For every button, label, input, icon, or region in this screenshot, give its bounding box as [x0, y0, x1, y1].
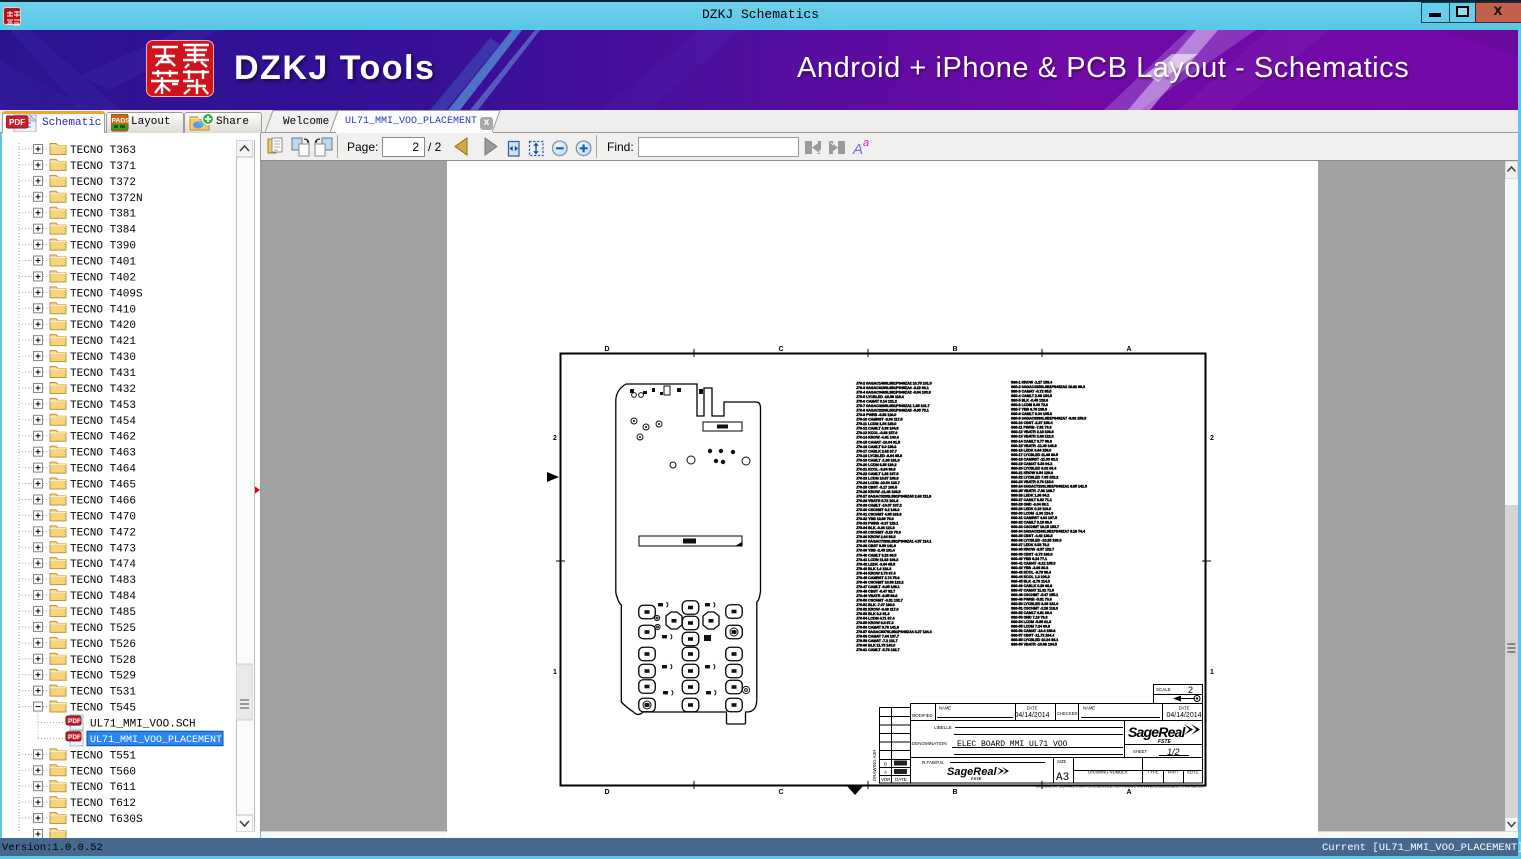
svg-text:NAME: NAME — [939, 706, 951, 711]
svg-text:S60-23 VBATR 0.76 115.0: S60-23 VBATR 0.76 115.0 — [1011, 480, 1053, 484]
svg-text:J70-22 CAMLT 1.92 107.9: J70-22 CAMLT 1.92 107.9 — [856, 472, 898, 476]
svg-text:S60-26 LEDK 1.36 94.2: S60-26 LEDK 1.36 94.2 — [1011, 494, 1049, 498]
svg-text:S60-9 0AGAC839SL9B1PS49ZA7 -9.: S60-9 0AGAC839SL9B1PS49ZA7 -9.92 159.3 — [1011, 417, 1086, 421]
svg-text:S60-52 CAMLT 4.81 69.4: S60-52 CAMLT 4.81 69.4 — [1011, 611, 1053, 615]
svg-text:J70-14 KROW -4.81 143.4: J70-14 KROW -4.81 143.4 — [856, 436, 900, 440]
svg-text:J70-38 CBST 9.59 141.9: J70-38 CBST 9.59 141.9 — [856, 544, 896, 548]
svg-text:S60-55 LCDM 7.24 68.8: S60-55 LCDM 7.24 68.8 — [1011, 625, 1050, 629]
svg-text:R.FAB/P.N.: R.FAB/P.N. — [922, 760, 944, 765]
svg-text:J70-20 LCDM 6.35 120.2: J70-20 LCDM 6.35 120.2 — [856, 463, 897, 467]
svg-text:TECNO T485: TECNO T485 — [70, 607, 136, 619]
svg-text:FSTE: FSTE — [971, 776, 982, 781]
svg-text:B: B — [952, 346, 957, 353]
svg-text:S60-5 BLK -0.49 128.6: S60-5 BLK -0.49 128.6 — [1011, 399, 1048, 403]
svg-text:J70-57 0AGAC907SL9B1PS49ZA4 3.: J70-57 0AGAC907SL9B1PS49ZA4 3.27 124.4 — [856, 630, 933, 634]
svg-text:S60-12 VBATR 2.18 108.9: S60-12 VBATR 2.18 108.9 — [1011, 430, 1054, 434]
svg-text:A: A — [852, 141, 863, 158]
svg-text:S60-46 CABLK 0.29 66.8: S60-46 CABLK 0.29 66.8 — [1011, 584, 1052, 588]
svg-text:J70-49 VBATR -9.55 96.0: J70-49 VBATR -9.55 96.0 — [856, 594, 897, 598]
svg-text:TECNO T474: TECNO T474 — [70, 559, 136, 571]
svg-text:J70-15 CAMAT -10.04 91.5: J70-15 CAMAT -10.04 91.5 — [856, 440, 900, 444]
svg-text:S60-18 CAMRST -11.33 82.3: S60-18 CAMRST -11.33 82.3 — [1011, 457, 1058, 461]
svg-text:J70-26 KROW -11.46 108.5: J70-26 KROW -11.46 108.5 — [856, 490, 901, 494]
svg-text:DOCUMENT SGM ALL RIGHTS RESERV: DOCUMENT SGM ALL RIGHTS RESERVED. REPROD… — [1036, 785, 1204, 789]
svg-text:TECNO T531: TECNO T531 — [70, 687, 136, 699]
svg-text:S60-50 LYCBLED 8.39 131.0: S60-50 LYCBLED 8.39 131.0 — [1011, 602, 1058, 606]
svg-text:J70-3 0AGAC619SL9B1PS49ZA4 -3.: J70-3 0AGAC619SL9B1PS49ZA4 -3.22 66.1 — [856, 386, 929, 390]
svg-text:MODIFIED: MODIFIED — [912, 713, 932, 718]
svg-text:S60-53 GND 7.19 79.3: S60-53 GND 7.19 79.3 — [1011, 616, 1048, 620]
svg-text:SIZE: SIZE — [1057, 759, 1067, 764]
svg-text:TECNO T431: TECNO T431 — [70, 368, 136, 380]
svg-text:J70-59 CAMAT -7.2 111.7: J70-59 CAMAT -7.2 111.7 — [856, 639, 898, 643]
svg-text:TECNO T464: TECNO T464 — [70, 464, 136, 476]
svg-text:S60-45 BLK -2.78 114.3: S60-45 BLK -2.78 114.3 — [1011, 579, 1050, 583]
svg-text:04/14/2014: 04/14/2014 — [1166, 712, 1201, 719]
svg-text:S60-37 LEDK 9.53 76.2: S60-37 LEDK 9.53 76.2 — [1011, 543, 1049, 547]
svg-text:J70-30 CSCHMT 9.2 146.0: J70-30 CSCHMT 9.2 146.0 — [856, 508, 900, 512]
svg-text:S60-27 CAMLT 6.82 71.1: S60-27 CAMLT 6.82 71.1 — [1011, 498, 1052, 502]
svg-text:TECNO T484: TECNO T484 — [70, 591, 136, 603]
svg-text:TECNO T381: TECNO T381 — [70, 209, 136, 221]
svg-text:S60-3 CAMAT -0.72 95.5: S60-3 CAMAT -0.72 95.5 — [1011, 390, 1051, 394]
svg-text:J70-31 CSCHMT 4.95 163.6: J70-31 CSCHMT 4.95 163.6 — [856, 513, 902, 517]
svg-text:S60-1 KROW -1.27 158.4: S60-1 KROW -1.27 158.4 — [1011, 381, 1053, 385]
svg-text:J70-19 CAMLT -1.88 161.0: J70-19 CAMLT -1.88 161.0 — [856, 458, 900, 462]
svg-text:J70-28 VBATR 5.72 101.8: J70-28 VBATR 5.72 101.8 — [856, 499, 898, 503]
svg-text:S60-21 KROW 9.54 129.6: S60-21 KROW 9.54 129.6 — [1011, 471, 1053, 475]
svg-text:J70-35 CSCHMT -5.23 75.3: J70-35 CSCHMT -5.23 75.3 — [856, 531, 901, 535]
svg-text:2: 2 — [553, 435, 557, 442]
svg-text:J70-55 KROW 9.8 97.3: J70-55 KROW 9.8 97.3 — [856, 621, 894, 625]
svg-text:J70-53 BLK 6.2 91.3: J70-53 BLK 6.2 91.3 — [856, 612, 890, 616]
svg-text:J70-6 CAMAT 3.14 121.2: J70-6 CAMAT 3.14 121.2 — [856, 400, 897, 404]
svg-text:J70-51 BLK -7.07 160.0: J70-51 BLK -7.07 160.0 — [856, 603, 895, 607]
svg-text:J70-37 0AGAC732SL9B1PS49ZA1 4.: J70-37 0AGAC732SL9B1PS49ZA1 4.57 114.1 — [856, 540, 931, 544]
svg-text:S60-33 CSCHMT 10.15 153.7: S60-33 CSCHMT 10.15 153.7 — [1011, 525, 1059, 529]
svg-text:TECNO T545: TECNO T545 — [70, 703, 136, 715]
svg-text:TECNO T454: TECNO T454 — [70, 416, 136, 428]
svg-text:S60-30 LCDM -1.36 124.3: S60-30 LCDM -1.36 124.3 — [1011, 512, 1053, 516]
svg-text:TECNO T402: TECNO T402 — [70, 272, 136, 284]
svg-text:A: A — [1126, 346, 1131, 353]
svg-text:J70-33 PWRB -8.37 129.1: J70-33 PWRB -8.37 129.1 — [856, 522, 898, 526]
svg-text:J70-54 LCDM 4.71 87.4: J70-54 LCDM 4.71 87.4 — [856, 617, 896, 621]
svg-text:S60-24 0AGAC723SL9B1PS49ZA1 8.: S60-24 0AGAC723SL9B1PS49ZA1 8.95 141.5 — [1011, 485, 1087, 489]
svg-text:TECNO T432: TECNO T432 — [70, 384, 136, 396]
svg-text:J70-4 0AGAC346SL9B1PS49ZA2 -9.: J70-4 0AGAC346SL9B1PS49ZA2 -9.94 103.9 — [856, 391, 931, 395]
svg-text:J70-32 YBB 10.99 75.8: J70-32 YBB 10.99 75.8 — [856, 517, 894, 521]
svg-text:J70-36 KROW 2.64 93.5: J70-36 KROW 2.64 93.5 — [856, 535, 896, 539]
svg-text:TECNO T372N: TECNO T372N — [70, 193, 143, 205]
svg-text:S60-31 CAMRST 4.63 107.5: S60-31 CAMRST 4.63 107.5 — [1011, 516, 1057, 520]
svg-text:TECNO T473: TECNO T473 — [70, 543, 136, 555]
svg-text:LIBELLE: LIBELLE — [934, 725, 952, 730]
svg-text:TYPE: TYPE — [1148, 770, 1159, 775]
svg-text:TECNO T611: TECNO T611 — [70, 782, 136, 794]
svg-text:/ 2: / 2 — [428, 140, 442, 154]
svg-text:J70-44 KROW 2.73 67.4: J70-44 KROW 2.73 67.4 — [856, 571, 897, 575]
svg-text:DATE: DATE — [1179, 706, 1190, 711]
svg-text:J70-21 KCOL -3.84 96.8: J70-21 KCOL -3.84 96.8 — [856, 467, 895, 471]
svg-text:Find:: Find: — [607, 140, 634, 154]
svg-text:S60-47 CAMAT 11.32 71.0: S60-47 CAMAT 11.32 71.0 — [1011, 588, 1054, 592]
svg-text:TECNO T560: TECNO T560 — [70, 766, 136, 778]
svg-text:Page:: Page: — [347, 140, 378, 154]
svg-text:J70-48 CBST -0.47 92.7: J70-48 CBST -0.47 92.7 — [856, 589, 895, 593]
svg-text:S60-42 YBB -3.86 80.6: S60-42 YBB -3.86 80.6 — [1011, 566, 1048, 570]
svg-text:S60-16 LEDK 0.64 158.0: S60-16 LEDK 0.64 158.0 — [1011, 448, 1051, 452]
svg-text:VDR: VDR — [881, 777, 891, 782]
svg-text:D: D — [604, 789, 609, 796]
svg-text:J70-12 CAMLT 4.33 104.9: J70-12 CAMLT 4.33 104.9 — [856, 427, 898, 431]
svg-text:J70-10 CAMRST -3.06 117.5: J70-10 CAMRST -3.06 117.5 — [856, 418, 903, 422]
svg-text:J70-18 LYCBLED -8.04 95.9: J70-18 LYCBLED -8.04 95.9 — [856, 454, 902, 458]
svg-text:S60-58 LYCBLED 10.24 88.1: S60-58 LYCBLED 10.24 88.1 — [1011, 638, 1058, 642]
svg-text:S60-22 LYCBLED 7.85 152.2: S60-22 LYCBLED 7.85 152.2 — [1011, 475, 1058, 479]
svg-text:J70-47 CAMLT -9.05 149.1: J70-47 CAMLT -9.05 149.1 — [856, 585, 900, 589]
svg-text:S60-54 LCDM -5.55 61.8: S60-54 LCDM -5.55 61.8 — [1011, 620, 1051, 624]
svg-text:NAME: NAME — [1083, 706, 1095, 711]
svg-text:S60-6 LCDM 8.03 72.6: S60-6 LCDM 8.03 72.6 — [1011, 403, 1048, 407]
svg-text:B: B — [952, 789, 957, 796]
svg-text:2: 2 — [412, 140, 419, 154]
svg-text:TECNO T551: TECNO T551 — [70, 750, 136, 762]
svg-text:TECNO T401: TECNO T401 — [70, 257, 136, 269]
svg-text:TECNO T526: TECNO T526 — [70, 639, 136, 651]
svg-text:J70-7 0AGAC326SL9B1PS49ZA1 1.8: J70-7 0AGAC326SL9B1PS49ZA1 1.85 101.7 — [856, 404, 930, 408]
svg-text:S60-7 YBB 6.78 138.8: S60-7 YBB 6.78 138.8 — [1011, 408, 1047, 412]
svg-text:TECNO T470: TECNO T470 — [70, 511, 136, 523]
svg-text:TECNO T384: TECNO T384 — [70, 225, 136, 237]
svg-text:TECNO T462: TECNO T462 — [70, 432, 136, 444]
svg-text:J70-46 CSCHMT 10.93 123.2: J70-46 CSCHMT 10.93 123.2 — [856, 580, 904, 584]
svg-text:TECNO T472: TECNO T472 — [70, 527, 136, 539]
svg-text:S60-48 CSCHMT -5.47 155.1: S60-48 CSCHMT -5.47 155.1 — [1011, 593, 1058, 597]
svg-text:TECNO T466: TECNO T466 — [70, 495, 136, 507]
svg-text:PDF: PDF — [68, 734, 81, 741]
svg-text:TECNO T483: TECNO T483 — [70, 575, 136, 587]
svg-text:J70-2 0AGAC149SL9B1PS49ZA2 10.: J70-2 0AGAC149SL9B1PS49ZA2 10.75 101.5 — [856, 382, 932, 386]
svg-text:FSTE: FSTE — [1158, 739, 1171, 745]
svg-text:DATE: DATE — [895, 777, 907, 782]
svg-text:S60-44 KCOL 1.3 106.2: S60-44 KCOL 1.3 106.2 — [1011, 575, 1050, 579]
svg-text:TECNO T529: TECNO T529 — [70, 671, 136, 683]
svg-text:J70-42 LEDK -3.84 65.5: J70-42 LEDK -3.84 65.5 — [856, 562, 895, 566]
svg-text:a: a — [863, 137, 869, 149]
svg-text:S60-49 PWRB -5.51 73.6: S60-49 PWRB -5.51 73.6 — [1011, 598, 1052, 602]
svg-text:J70-16 CAMLT 9.0 136.6: J70-16 CAMLT 9.0 136.6 — [856, 445, 896, 449]
svg-text:D: D — [604, 346, 609, 353]
svg-text:TECNO T421: TECNO T421 — [70, 336, 136, 348]
svg-text:1: 1 — [1210, 669, 1214, 676]
svg-text:C: C — [778, 346, 783, 353]
svg-text:J70-5 LYCBLED -10.58 119.4: J70-5 LYCBLED -10.58 119.4 — [856, 395, 905, 399]
svg-text:TECNO T463: TECNO T463 — [70, 448, 136, 460]
svg-text:J70-24 LCDM -10.54 133.7: J70-24 LCDM -10.54 133.7 — [856, 481, 900, 485]
svg-text:TECNO T371: TECNO T371 — [70, 161, 136, 173]
svg-text:S60-11 PWRB -7.92 73.3: S60-11 PWRB -7.92 73.3 — [1011, 426, 1052, 430]
svg-text:TECNO T528: TECNO T528 — [70, 655, 136, 667]
svg-text:S60-17 LYCBLED 11.68 80.5: S60-17 LYCBLED 11.68 80.5 — [1011, 453, 1058, 457]
svg-text:S60-29 LEDK 0.19 119.0: S60-29 LEDK 0.19 119.0 — [1011, 507, 1051, 511]
svg-text:B: B — [884, 762, 887, 767]
svg-text:S60-20 LYCBLED 8.02 66.4: S60-20 LYCBLED 8.02 66.4 — [1011, 466, 1057, 470]
svg-text:J70-60 BLK 11.75 143.0: J70-60 BLK 11.75 143.0 — [856, 644, 895, 648]
svg-text:PDF: PDF — [68, 718, 81, 725]
svg-text:TECNO T612: TECNO T612 — [70, 798, 136, 810]
svg-text:S60-43 KCOL -9.79 98.4: S60-43 KCOL -9.79 98.4 — [1011, 570, 1052, 574]
svg-text:TECNO T410: TECNO T410 — [70, 304, 136, 316]
svg-text:TECNO T453: TECNO T453 — [70, 400, 136, 412]
svg-text:S60-40 YBB 9.24 77.1: S60-40 YBB 9.24 77.1 — [1011, 557, 1047, 561]
svg-text:S60-4 CAMLT 2.98 154.5: S60-4 CAMLT 2.98 154.5 — [1011, 394, 1052, 398]
svg-text:PART: PART — [1168, 770, 1179, 775]
svg-text:S60-13 VBATR 2.68 122.6: S60-13 VBATR 2.68 122.6 — [1011, 435, 1054, 439]
svg-text:J70-61 CAMLT -5.78 132.7: J70-61 CAMLT -5.78 132.7 — [856, 648, 900, 652]
svg-text:DENOMINATION: DENOMINATION — [912, 741, 947, 746]
svg-text:2: 2 — [1210, 435, 1214, 442]
svg-text:J70-41 LCDM 11.63 106.3: J70-41 LCDM 11.63 106.3 — [856, 558, 898, 562]
svg-text:S60-35 CBST -4.42 130.5: S60-35 CBST -4.42 130.5 — [1011, 534, 1053, 538]
svg-text:S60-2 0AGAC325SL9B1PS49ZA2 10.: S60-2 0AGAC325SL9B1PS49ZA2 10.92 98.3 — [1011, 385, 1085, 389]
svg-text:DRAWING A3H: DRAWING A3H — [872, 750, 877, 781]
svg-text:J70-13 KCOL -0.83 157.0: J70-13 KCOL -0.83 157.0 — [856, 431, 897, 435]
svg-text:S60-19 CAMAT 6.33 94.2: S60-19 CAMAT 6.33 94.2 — [1011, 462, 1052, 466]
svg-text:J70-50 CSCHMT -0.51 132.7: J70-50 CSCHMT -0.51 132.7 — [856, 599, 903, 603]
svg-text:S60-8 CAMLT 9.34 105.6: S60-8 CAMLT 9.34 105.6 — [1011, 412, 1052, 416]
svg-text:TECNO T630S: TECNO T630S — [70, 814, 143, 826]
svg-text:J70-40 CAMLT 3.22 66.5: J70-40 CAMLT 3.22 66.5 — [856, 553, 896, 557]
svg-text:TECNO T390: TECNO T390 — [70, 241, 136, 253]
svg-text:04/14/2014: 04/14/2014 — [1014, 712, 1049, 719]
svg-text:UL71_MMI_VOO_PLACEMENT: UL71_MMI_VOO_PLACEMENT — [90, 735, 222, 746]
svg-text:S60-36 LYCBLED -10.25 130.3: S60-36 LYCBLED -10.25 130.3 — [1011, 539, 1061, 543]
svg-text:VERS.: VERS. — [1187, 770, 1200, 775]
svg-text:J70-52 KROW -8.48 117.0: J70-52 KROW -8.48 117.0 — [856, 608, 899, 612]
svg-text:SCALE: SCALE — [1156, 687, 1171, 692]
svg-text:J70-58 CAMAT 7.64 137.7: J70-58 CAMAT 7.64 137.7 — [856, 635, 899, 639]
svg-text:S60-51 CSCHMT -2.26 116.3: S60-51 CSCHMT -2.26 116.3 — [1011, 607, 1058, 611]
svg-text:J70-23 LCDM 10.67 109.8: J70-23 LCDM 10.67 109.8 — [856, 476, 899, 480]
svg-text:S60-28 GND -6.04 89.1: S60-28 GND -6.04 89.1 — [1011, 503, 1049, 507]
svg-text:J70-27 0AGAC323SL9B1PS49ZA5 2.: J70-27 0AGAC323SL9B1PS49ZA5 2.66 111.8 — [856, 495, 931, 499]
svg-text:TECNO T465: TECNO T465 — [70, 480, 136, 492]
svg-text:2: 2 — [1188, 685, 1193, 695]
svg-text:S60-10 CBST -2.37 159.4: S60-10 CBST -2.37 159.4 — [1011, 421, 1053, 425]
svg-text:DRAWING NUMBER: DRAWING NUMBER — [1088, 770, 1127, 775]
svg-text:S60-34 0AGAC224SL9B1PS49ZA7 8.: S60-34 0AGAC224SL9B1PS49ZA7 8.16 74.4 — [1011, 530, 1086, 534]
svg-text:S60-15 VBATR -11.49 143.9: S60-15 VBATR -11.49 143.9 — [1011, 444, 1057, 448]
svg-text:1: 1 — [553, 669, 557, 676]
svg-text:DATE: DATE — [1027, 706, 1038, 711]
svg-text:J70-43 BLK 1.6 116.3: J70-43 BLK 1.6 116.3 — [856, 567, 891, 571]
svg-text:S60-57 CBST -11.72 164.4: S60-57 CBST -11.72 164.4 — [1011, 634, 1055, 638]
svg-text:SageReal: SageReal — [1128, 724, 1187, 740]
svg-text:J70-34 BLK -0.36 121.9: J70-34 BLK -0.36 121.9 — [856, 526, 895, 530]
svg-text:J70-8 0AGAC220SL9B1PS49ZA5 -5.: J70-8 0AGAC220SL9B1PS49ZA5 -5.05 75.1 — [856, 409, 929, 413]
svg-text:UL71_MMI_VOO.SCH: UL71_MMI_VOO.SCH — [90, 718, 196, 730]
svg-text:TECNO T430: TECNO T430 — [70, 352, 136, 364]
svg-text:J70-39 YBB -2.45 101.4: J70-39 YBB -2.45 101.4 — [856, 549, 896, 553]
svg-text:S60-32 CAMLT 0.19 86.0: S60-32 CAMLT 0.19 86.0 — [1011, 521, 1052, 525]
svg-text:S60-41 CAMAT -8.12 105.3: S60-41 CAMAT -8.12 105.3 — [1011, 561, 1055, 565]
svg-text:S60-59 VBATR -10.96 134.5: S60-59 VBATR -10.96 134.5 — [1011, 643, 1057, 647]
svg-text:TECNO T525: TECNO T525 — [70, 623, 136, 635]
svg-text:S60-39 CBST -6.73 160.0: S60-39 CBST -6.73 160.0 — [1011, 552, 1053, 556]
svg-text:J70-17 CABLK 2.62 67.7: J70-17 CABLK 2.62 67.7 — [856, 449, 897, 453]
svg-text:TECNO T372: TECNO T372 — [70, 177, 136, 189]
svg-text:S60-14 CAMLT 3.77 96.8: S60-14 CAMLT 3.77 96.8 — [1011, 439, 1052, 443]
svg-text:J70-11 LCDM 1.54 125.0: J70-11 LCDM 1.54 125.0 — [856, 422, 896, 426]
svg-text:TECNO T409S: TECNO T409S — [70, 288, 143, 300]
svg-text:A3: A3 — [1056, 772, 1069, 784]
svg-text:PDF: PDF — [9, 118, 25, 127]
svg-text:CHECKED: CHECKED — [1057, 711, 1077, 716]
svg-text:J70-45 CAMRST 2.74 75.6: J70-45 CAMRST 2.74 75.6 — [856, 576, 900, 580]
svg-text:J70-25 CBST -5.17 100.5: J70-25 CBST -5.17 100.5 — [856, 486, 897, 490]
svg-text:S60-38 KROW -8.57 152.7: S60-38 KROW -8.57 152.7 — [1011, 548, 1054, 552]
svg-text:J70-56 CAMAT 0.78 141.8: J70-56 CAMAT 0.78 141.8 — [856, 626, 899, 630]
svg-text:PADS: PADS — [112, 118, 130, 125]
svg-text:TECNO T363: TECNO T363 — [70, 145, 136, 157]
svg-text:J70-9 PWRB -9.53 120.0: J70-9 PWRB -9.53 120.0 — [856, 413, 896, 417]
svg-text:J70-29 CAMLT -10.07 107.2: J70-29 CAMLT -10.07 107.2 — [856, 504, 902, 508]
svg-text:A: A — [884, 770, 887, 775]
svg-text:A: A — [1126, 789, 1131, 796]
svg-text:SHEET: SHEET — [1133, 749, 1147, 754]
svg-text:S60-56 CAMAT -10.4 150.6: S60-56 CAMAT -10.4 150.6 — [1011, 629, 1055, 633]
svg-text:C: C — [778, 789, 783, 796]
svg-text:S60-25 VBATR -7.86 109.7: S60-25 VBATR -7.86 109.7 — [1011, 489, 1055, 493]
svg-text:TECNO T420: TECNO T420 — [70, 320, 136, 332]
